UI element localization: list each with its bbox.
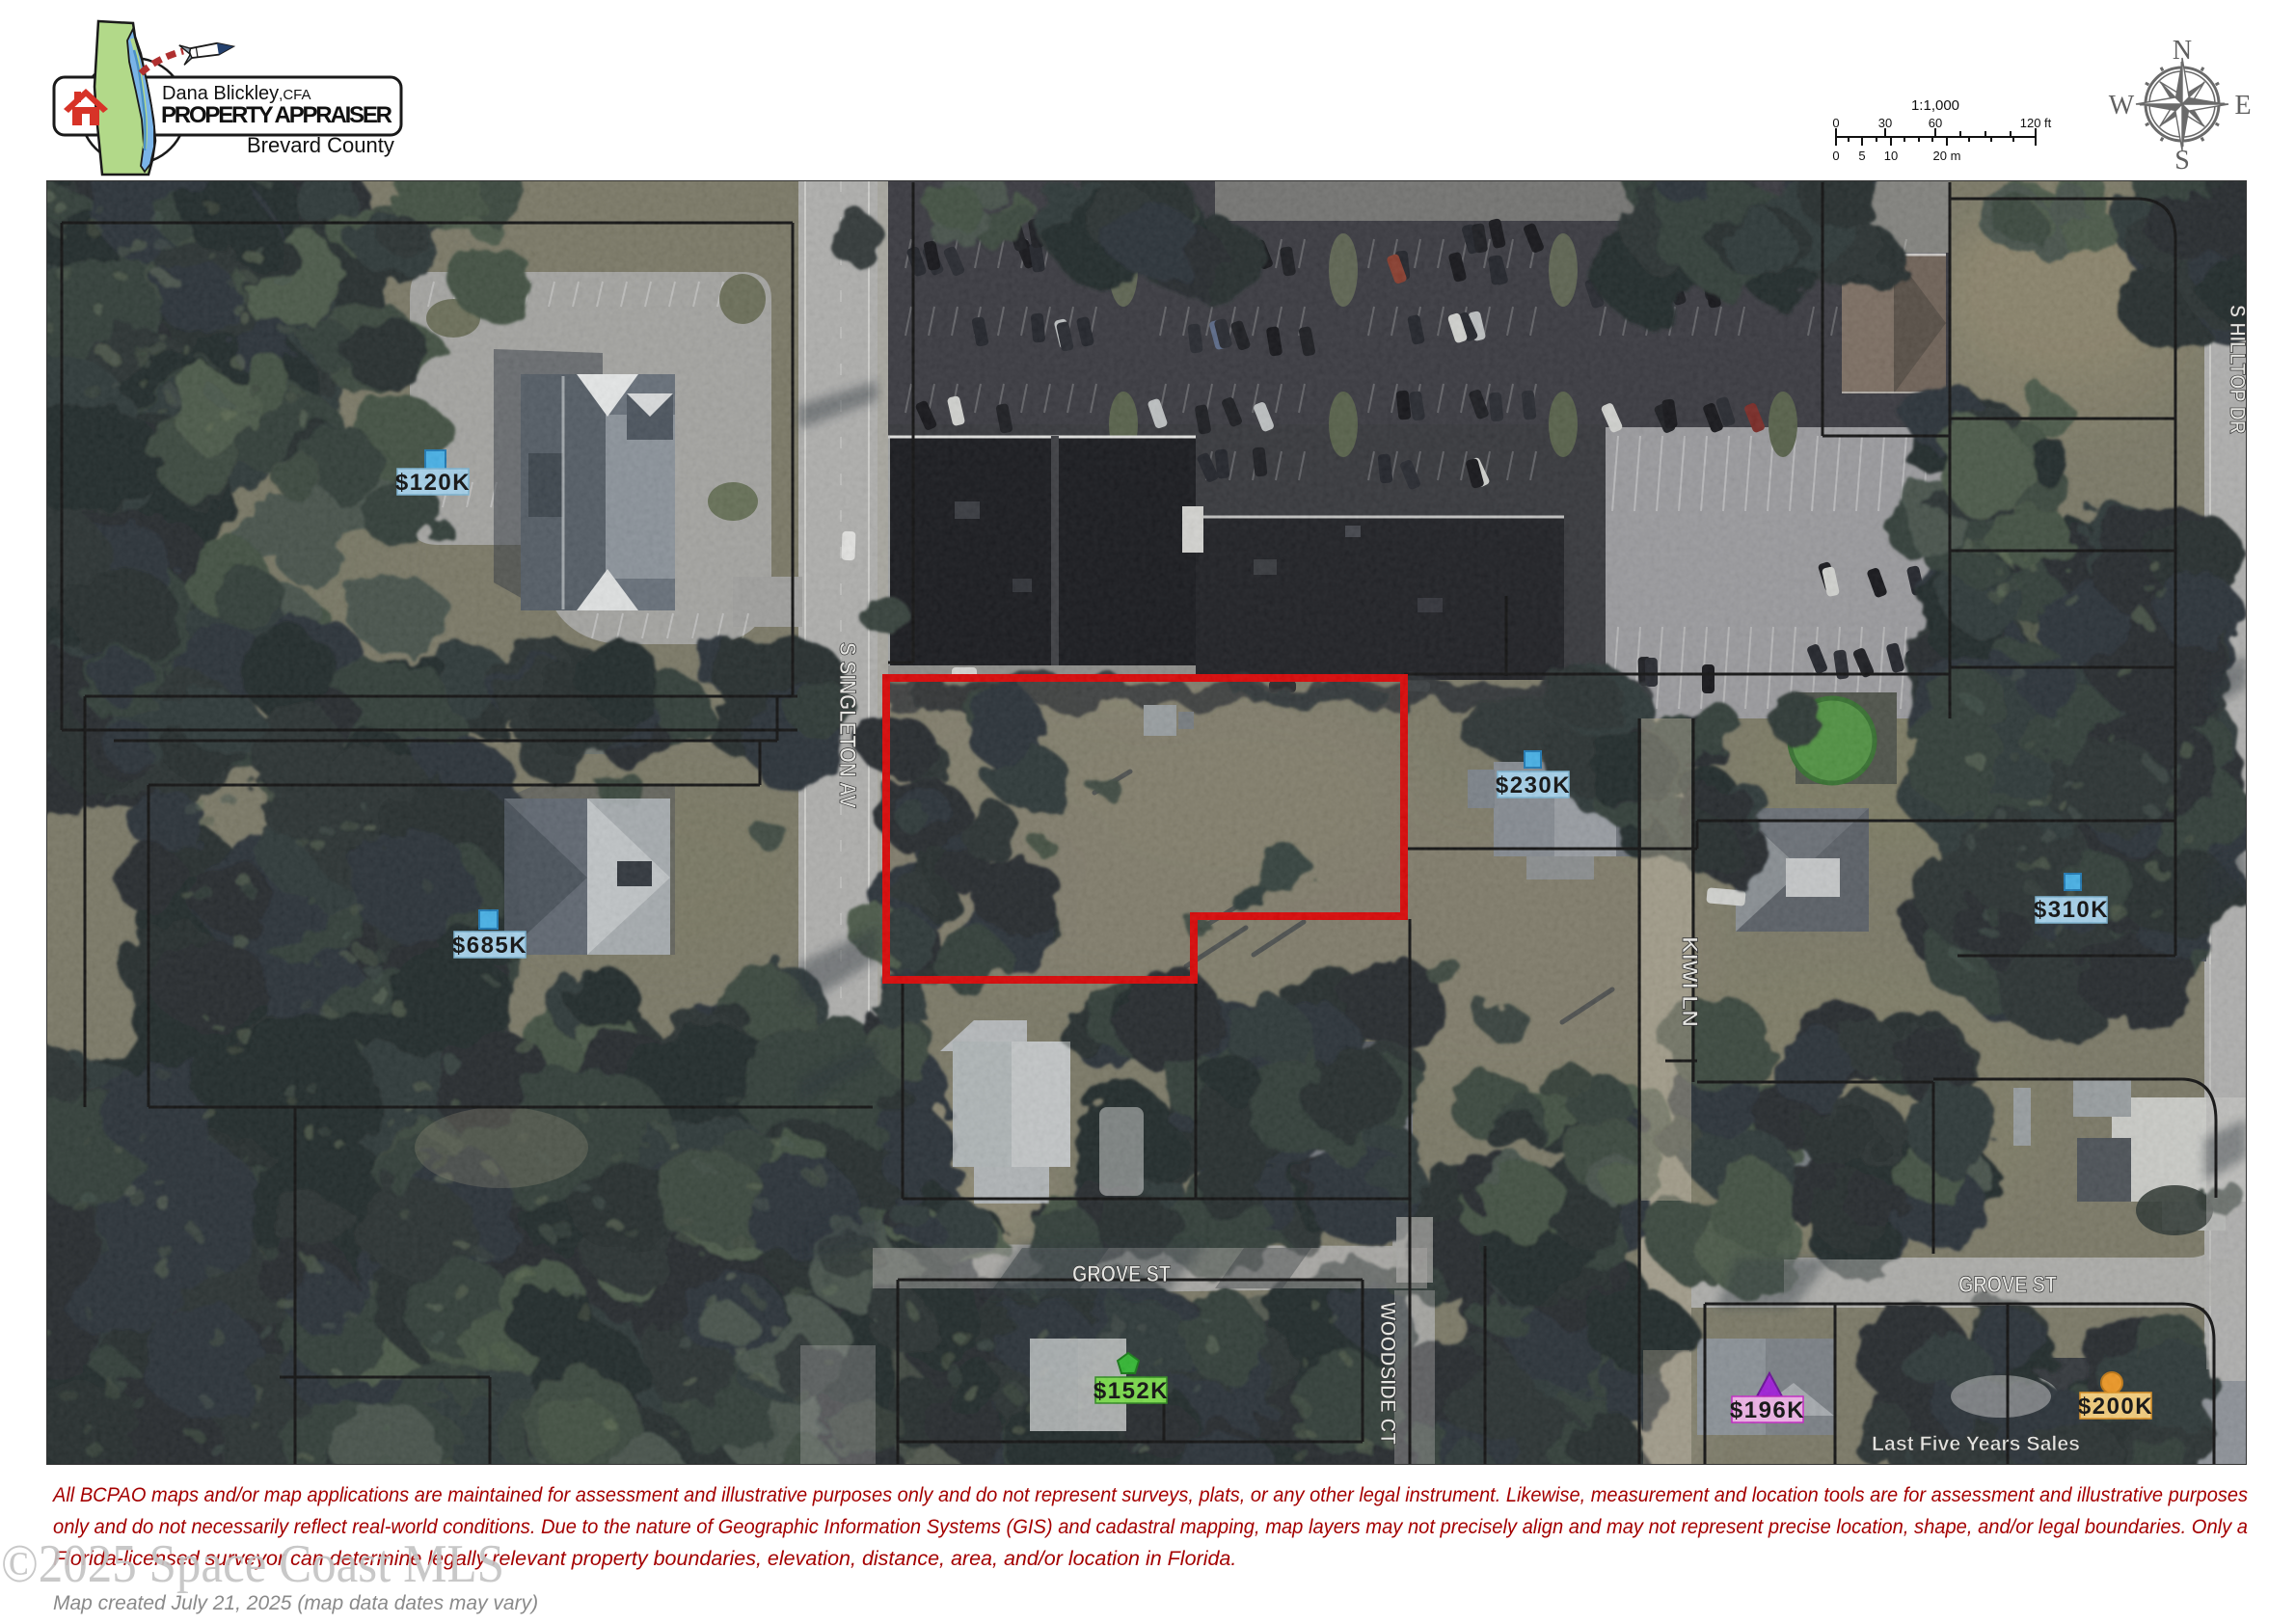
svg-text:20 m: 20 m <box>1933 149 1961 163</box>
svg-text:S: S <box>2174 146 2190 176</box>
svg-text:60: 60 <box>1929 116 1942 130</box>
svg-text:0: 0 <box>1832 149 1839 163</box>
svg-text:1:1,000: 1:1,000 <box>1911 97 1959 114</box>
svg-text:W: W <box>2109 91 2135 121</box>
svg-text:All BCPAO maps and/or map appl: All BCPAO maps and/or map applications a… <box>51 1483 2248 1506</box>
svg-text:0: 0 <box>1832 116 1839 130</box>
svg-text:30: 30 <box>1878 116 1892 130</box>
svg-text:Dana Blickley,CFA: Dana Blickley,CFA <box>162 83 311 104</box>
svg-text:Map created July 21, 2025 (map: Map created July 21, 2025 (map data date… <box>53 1592 538 1614</box>
svg-text:N: N <box>2173 36 2192 66</box>
svg-text:E: E <box>2234 91 2251 121</box>
svg-text:120 ft: 120 ft <box>2020 116 2052 130</box>
svg-text:10: 10 <box>1884 149 1898 163</box>
svg-text:5: 5 <box>1858 149 1865 163</box>
svg-text:©2025 Space Coast MLS: ©2025 Space Coast MLS <box>1 1534 504 1594</box>
svg-text:Brevard County: Brevard County <box>247 133 394 157</box>
svg-text:PROPERTY APPRAISER: PROPERTY APPRAISER <box>161 102 392 128</box>
